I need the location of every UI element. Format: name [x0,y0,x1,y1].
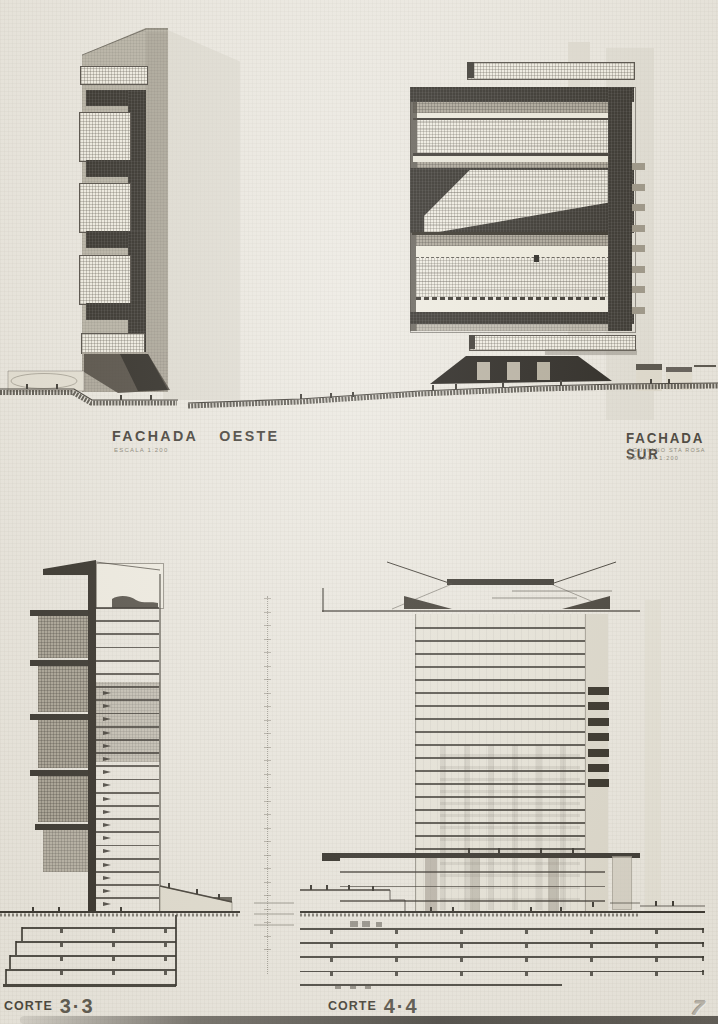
figure [218,894,220,899]
dash44-item [588,779,609,787]
t44-item [655,930,658,934]
fl44-item [415,835,585,837]
t44-item [525,958,528,962]
lv-item [264,639,271,640]
stab-item [632,163,645,170]
figure [352,392,354,397]
arr33-item [103,757,111,761]
fl44-item [415,640,585,642]
corte-44-number: 4·4 [384,999,419,1013]
fl33-item [96,726,159,728]
figure [455,384,457,389]
lv-item [264,882,271,883]
t44-item [330,972,333,976]
figure [310,885,312,890]
fl33-item [96,792,159,794]
figure [330,393,332,398]
corte-44-word: CORTE [328,999,377,1013]
stab-item [632,245,645,252]
t44-item [525,930,528,934]
figure [168,883,170,888]
figure [326,885,328,890]
t44-item [330,944,333,948]
t44-item [460,944,463,948]
figure [56,384,58,389]
figure [468,848,470,853]
arr33-item [103,849,111,853]
arr33-item [103,744,111,748]
arr33-item [103,691,111,695]
fl44-item [415,796,585,798]
arr33-item [103,783,111,787]
fl44-item [415,692,585,694]
t33-item [60,971,63,975]
arr33-item [103,889,111,893]
fl44-item [415,744,585,746]
t44-item [395,972,398,976]
fl33-item [96,633,159,635]
south-pier-3 [537,362,550,380]
figure [120,907,122,912]
arr33-item [103,902,111,906]
fl44-item [415,653,585,655]
dash44-item [588,687,609,695]
arr33-item [103,797,111,801]
fachada-sur-subtitle: AGUIYANO STA ROSA [628,447,706,453]
stab-item [632,184,645,191]
corte44-cable-right [551,562,616,584]
stab-item [632,307,645,314]
t33-item [164,929,167,933]
figure [120,395,122,400]
lv-item [264,909,271,910]
fachada-oeste-title: FACHADA OESTE [112,427,279,444]
arr33-item [103,836,111,840]
figure [572,848,574,853]
fl33-item [96,607,159,609]
fl33-item [96,805,159,807]
t44-item [655,958,658,962]
figure [655,901,657,906]
t44-item [590,930,593,934]
t44-item [395,930,398,934]
figure [348,885,350,890]
fl44-item [415,705,585,707]
lv-item [264,693,271,694]
figure [372,886,374,891]
t44-item [395,958,398,962]
figure [650,379,652,384]
t33-item [164,943,167,947]
lv-item [264,936,271,937]
arr33-item [103,731,111,735]
figure [430,907,432,912]
fl33-item [96,699,159,701]
figure [672,901,674,906]
t44-item [395,944,398,948]
dash44-item [588,749,609,757]
corte-33-number: 3·3 [60,999,95,1013]
t44-item [525,972,528,976]
t33-item [60,929,63,933]
lv-item [264,787,271,788]
south-base-trapezoid [430,356,612,384]
arr33-item [103,717,111,721]
figure [668,379,670,384]
t44-item [330,958,333,962]
figure [452,907,454,912]
fachada-sur-scale: ESCALA 1:200 [628,455,679,461]
lv-item [264,841,271,842]
lv-item [264,706,271,707]
figure [300,394,302,399]
lv-item [264,801,271,802]
fl33-item [96,818,159,820]
ground-right-line [188,383,718,403]
lv-item [264,814,271,815]
t33-item [60,943,63,947]
fl33-item [96,620,159,622]
lv-item [264,868,271,869]
bl44-item [300,928,704,930]
stab-item [632,204,645,211]
dash44-item [588,718,609,726]
t44-item [590,958,593,962]
arr33-item [103,876,111,880]
t44-item [525,944,528,948]
fl44-item [415,679,585,681]
fl44-item [415,809,585,811]
fl44-item [415,757,585,759]
fl44-item [415,718,585,720]
corte-33-label: CORTE 3·3 [4,999,95,1013]
corte-44-label: CORTE 4·4 [328,999,419,1013]
figure [560,380,562,385]
lv-item [264,949,271,950]
fl33-item [96,871,159,873]
west-tower-top-outline [82,29,168,55]
lv-item [264,774,271,775]
lv-item [264,895,271,896]
fl33-item [96,752,159,754]
figure [540,848,542,853]
t33-item [60,957,63,961]
stab-item [632,266,645,273]
fl33-item [96,673,159,675]
fl33-item [96,884,159,886]
fl33-item [96,897,159,899]
figure [530,907,532,912]
lv-item [264,760,271,761]
lv-item [264,625,271,626]
bl44-item [300,942,704,944]
south-pier-1 [477,362,490,380]
dash44-item [588,702,609,710]
t44-item [460,958,463,962]
figure [432,385,434,390]
figure [560,907,562,912]
t44-item [460,972,463,976]
figure [592,902,594,907]
fl33-item [96,831,159,833]
figure [502,382,504,387]
figure [32,907,34,912]
bl44-item [300,956,704,958]
fl44-item [415,770,585,772]
t44-item [590,944,593,948]
lv-item [264,679,271,680]
figure [26,384,28,389]
t33-item [112,929,115,933]
lv-item [264,828,271,829]
t33-item [112,943,115,947]
fl44-item [415,627,585,629]
scanned-page: FACHADA OESTE ESCALA 1:200 FACHADA SUR A… [0,0,718,1024]
fl33-item [96,647,159,649]
figure [58,907,60,912]
corte33-roof-line [96,562,160,570]
fl33-item [96,713,159,715]
figure [196,889,198,894]
fl33-item [96,686,159,688]
fachada-oeste-scale: ESCALA 1:200 [114,447,168,453]
arr33-item [103,863,111,867]
fl33-item [96,765,159,767]
stab-item [632,286,645,293]
fl44-item [415,822,585,824]
lv-item [264,598,271,599]
fl44-item [415,666,585,668]
fl33-item [96,779,159,781]
lv-item [264,922,271,923]
t44-item [655,972,658,976]
lv-item [264,666,271,667]
page-bottom-edge [20,1016,718,1024]
fl33-item [96,660,159,662]
fl44-item [415,731,585,733]
corte-33-word: CORTE [4,999,53,1013]
figure [150,395,152,400]
figure [498,848,500,853]
corte44-cable-left [387,562,452,584]
t33-item [112,957,115,961]
t33-item [164,971,167,975]
stab-item [632,225,645,232]
lv-item [264,612,271,613]
t44-item [460,930,463,934]
corte33-roof-wedge [43,560,96,575]
bl44-item [300,971,704,973]
fl33-item [96,739,159,741]
fl44-item [415,783,585,785]
t33-item [112,971,115,975]
south-pier-2 [507,362,520,380]
dash44-item [588,764,609,772]
lv-item [264,747,271,748]
corte44-eave-wedge-left [404,596,452,609]
t44-item [590,972,593,976]
fl33-item [96,845,159,847]
arr33-item [103,704,111,708]
lv-item [264,720,271,721]
fl33-item [96,858,159,860]
t44-item [330,930,333,934]
dash44-item [588,733,609,741]
lv-item [264,855,271,856]
arr33-item [103,810,111,814]
t44-item [655,944,658,948]
arr33-item [103,770,111,774]
fl44b-item [340,900,605,902]
t33-item [164,957,167,961]
lv-item [264,733,271,734]
lv-item [264,652,271,653]
ground-right-strip [188,386,718,406]
fl44b-item [340,871,605,873]
arr33-item [103,823,111,827]
fl44b-item [340,886,605,888]
